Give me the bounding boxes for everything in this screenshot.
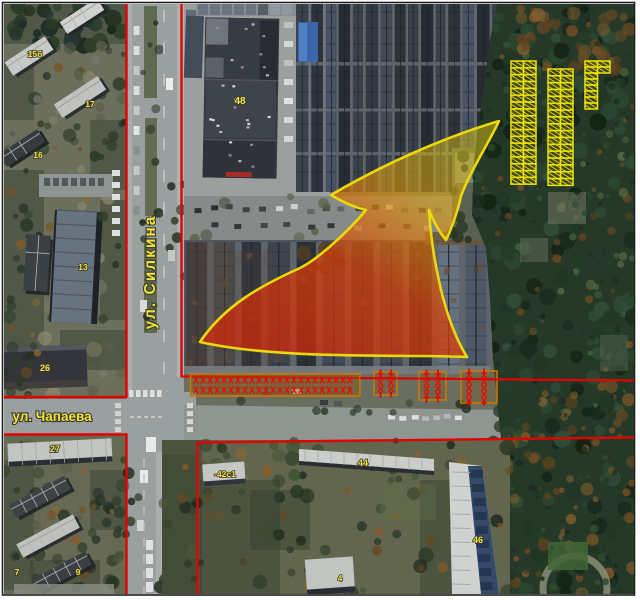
svg-text:17: 17 <box>85 99 95 109</box>
svg-text:48: 48 <box>234 96 246 107</box>
svg-text:13: 13 <box>78 262 88 272</box>
svg-text:ул. Чапаева: ул. Чапаева <box>12 409 92 424</box>
svg-text:15б: 15б <box>28 49 43 59</box>
svg-text:27: 27 <box>50 444 60 454</box>
svg-text:7: 7 <box>15 567 20 577</box>
svg-text:44: 44 <box>358 458 368 468</box>
svg-text:ул. Силкина: ул. Силкина <box>142 215 159 330</box>
svg-text:46: 46 <box>473 535 483 545</box>
svg-text:16: 16 <box>33 150 43 160</box>
svg-text:26: 26 <box>40 363 50 373</box>
svg-text:9: 9 <box>76 567 81 577</box>
svg-text:4: 4 <box>338 573 343 583</box>
svg-text:-42с1: -42с1 <box>214 469 236 479</box>
